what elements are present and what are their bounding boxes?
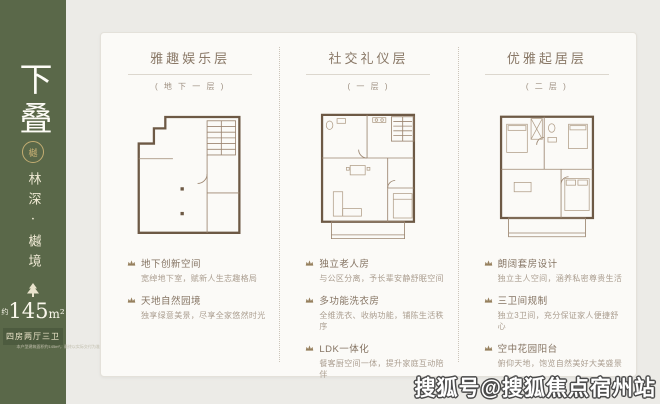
area-value: 约145m² — [0, 299, 66, 323]
crown-leaf-icon — [127, 259, 136, 267]
crown-leaf-icon — [305, 296, 314, 304]
feature-list: 独立老人房 与公区分离，予长辈安静舒眠空间 多功能洗衣房 全维洗衣、收纳功能，铺… — [279, 248, 457, 380]
feature-title: 三卫间规制 — [498, 293, 548, 307]
feature-list: 朗阔套房设计 独立主人空间，涵养私密尊贵生活 三卫间规制 独立3卫间，充分保证家… — [458, 248, 636, 369]
floor-subtitle: ( 地 下 一 层 ) — [101, 81, 279, 92]
feature-title: 空中花园阳台 — [498, 341, 558, 355]
feature-desc: 与公区分离，予长辈安静舒眠空间 — [319, 273, 447, 284]
project-name: 林深·樾境 — [24, 172, 43, 274]
watermark-text: 搜狐号@搜狐焦点宿州站 — [415, 372, 656, 402]
feature-title: 独立老人房 — [319, 256, 369, 270]
feature-item: 多功能洗衣房 全维洗衣、收纳功能，铺陈生活秩序 — [305, 293, 447, 332]
feature-title: 地下创新空间 — [141, 256, 201, 270]
floorplan-card: 雅趣娱乐层 ( 地 下 一 层 ) — [100, 32, 637, 377]
floor-plan-first — [293, 98, 443, 248]
crown-leaf-icon — [484, 296, 493, 304]
floor-title: 雅趣娱乐层 — [101, 48, 279, 67]
feature-item: 朗阔套房设计 独立主人空间，涵养私密尊贵生活 — [484, 256, 626, 284]
feature-item: 天地自然园境 独享绿意美景，尽享全家悠然时光 — [127, 293, 269, 321]
floor-plan-basement — [112, 98, 268, 248]
feature-desc: 独立3卫间，充分保证家人便捷舒心 — [498, 310, 626, 332]
feature-item: 独立老人房 与公区分离，予长辈安静舒眠空间 — [305, 256, 447, 284]
feature-item: 三卫间规制 独立3卫间，充分保证家人便捷舒心 — [484, 293, 626, 332]
feature-desc: 俯仰天地，饱览自然美好大美盛景 — [498, 358, 626, 369]
feature-item: 空中花园阳台 俯仰天地，饱览自然美好大美盛景 — [484, 341, 626, 369]
pine-tree-icon — [27, 283, 39, 297]
floor-title: 社交礼仪层 — [279, 48, 457, 67]
feature-desc: 宽绰地下室，赋新人生志趣格局 — [141, 273, 269, 284]
divider-line — [306, 74, 430, 75]
crown-leaf-icon — [484, 259, 493, 267]
feature-title: 朗阔套房设计 — [498, 256, 558, 270]
feature-title: 天地自然园境 — [141, 293, 201, 307]
divider-line — [485, 74, 609, 75]
feature-list: 地下创新空间 宽绰地下室，赋新人生志趣格局 天地自然园境 独享绿意美景，尽享全家… — [101, 248, 279, 321]
area-number: 145 — [8, 299, 48, 323]
feature-desc: 独立主人空间，涵养私密尊贵生活 — [498, 273, 626, 284]
floor-subtitle: ( 二 层 ) — [458, 81, 636, 92]
crown-leaf-icon — [127, 296, 136, 304]
crown-leaf-icon — [484, 344, 493, 352]
feature-desc: 独享绿意美景，尽享全家悠然时光 — [141, 310, 269, 321]
crown-leaf-icon — [305, 344, 314, 352]
feature-item: 地下创新空间 宽绰地下室，赋新人生志趣格局 — [127, 256, 269, 284]
area-unit: m² — [48, 307, 64, 321]
floor-column-first: 社交礼仪层 ( 一 层 ) — [279, 33, 457, 376]
floor-column-basement: 雅趣娱乐层 ( 地 下 一 层 ) — [101, 33, 279, 376]
floor-subtitle: ( 一 层 ) — [279, 81, 457, 92]
brand-panel: 下叠 樾 林深·樾境 约145m² 四房两厅三卫 本户型建筑面积约145m²，最… — [0, 0, 66, 404]
floor-plan-second — [472, 98, 622, 248]
feature-title: 多功能洗衣房 — [319, 293, 379, 307]
seal-icon: 樾 — [22, 141, 44, 163]
product-title: 下叠 — [9, 62, 57, 140]
divider-line — [128, 74, 252, 75]
feature-desc: 全维洗衣、收纳功能，铺陈生活秩序 — [319, 310, 447, 332]
crown-leaf-icon — [305, 259, 314, 267]
floor-title: 优雅起居层 — [458, 48, 636, 67]
spec-banner: 四房两厅三卫 — [3, 328, 63, 345]
disclaimer-text: 本户型建筑面积约145m²，最终以实际交付为准 — [17, 344, 50, 350]
floor-column-second: 优雅起居层 ( 二 层 ) — [458, 33, 636, 376]
feature-title: LDK一体化 — [319, 341, 369, 355]
